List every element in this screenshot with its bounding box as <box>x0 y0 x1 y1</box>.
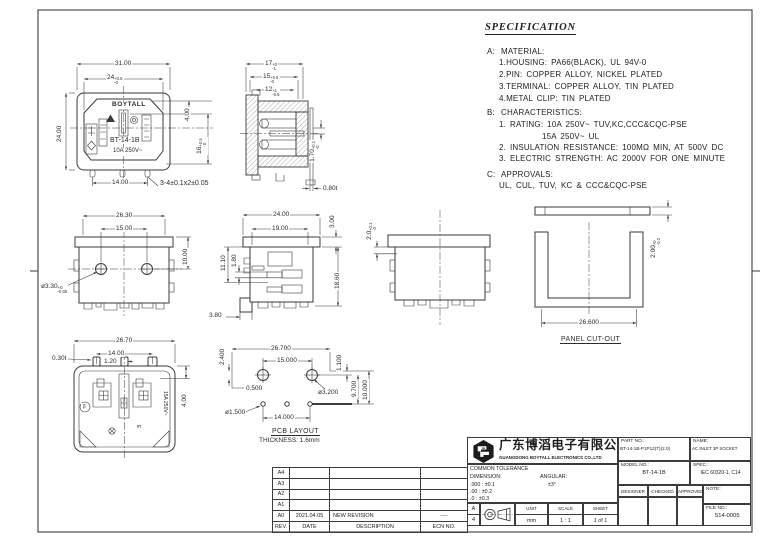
tolerance-dimension-label: DIMENSION: <box>470 474 502 480</box>
projection-symbol-cell <box>480 503 515 526</box>
dim-pcb-10: 10.000 <box>362 379 369 401</box>
dim-side-width: 24.00 <box>272 211 290 218</box>
sheet-cell: SHEET 1 of 1 <box>583 503 618 526</box>
dim-front-pin-note: 3-4±0.1x2±0.05 <box>159 180 210 187</box>
dim-back-hole-dia: ø3.30+0-0.05 <box>40 283 68 295</box>
spec-item: 2. INSULATION RESISTANCE: 100MΩ MIN, AT … <box>499 143 723 152</box>
dim-section-080: 0.80t <box>322 185 338 192</box>
dim-front-4: 4.00 <box>184 107 191 122</box>
dim-panel-thickness: 2.00+0-0.2 <box>650 237 662 259</box>
checked-header: CHECKED <box>648 485 677 497</box>
unit-label: UNIT <box>516 504 547 515</box>
view-side2 <box>388 210 490 325</box>
sheet-label: SHEET <box>584 504 617 515</box>
dim-pcb-11: 1.100 <box>336 354 343 372</box>
dim-bottom-pitch: 14.00 <box>107 350 125 357</box>
company-name-cn: 广东博滔电子有限公司 <box>499 438 630 452</box>
name-value: AC INLET 3P SOCKET <box>691 444 750 451</box>
company-name-en: GUANGDONG BOYTALL ELECTRONICS CO.,LTD <box>499 455 602 460</box>
dim-side-height: 18.60 <box>334 272 341 290</box>
spec-section-c: C:APPROVALS: <box>487 170 553 179</box>
tolerance-angular-value: ±3° <box>548 482 556 488</box>
spec-item: 3.TERMINAL: COPPER ALLOY, TIN PLATED <box>499 82 674 91</box>
dim-front-opening: 24+0.5-0 <box>106 74 124 86</box>
view-back <box>68 230 182 316</box>
scale-value: 1 : 1 <box>549 515 582 527</box>
revision-row: A2 <box>273 489 468 500</box>
dims-panel <box>542 200 673 327</box>
revision-table: A4 A3 A2 A1 A02021.04.05NEW REVISION----… <box>272 467 468 533</box>
dim-pcb-24: 2.400 <box>219 348 226 366</box>
tolerance-title: COMMON TOLERANCE <box>470 466 528 472</box>
dim-panel-width: 26.600 <box>578 319 600 326</box>
dims-bottom <box>68 341 190 379</box>
first-angle-projection-icon <box>481 504 514 525</box>
paper-size-4: 4 <box>468 515 479 526</box>
tolerance-row: .000 : ±0.1 <box>470 482 495 488</box>
ul-mark: uL <box>81 403 88 410</box>
spec-item: 2.PIN: COPPER ALLOY, NICKEL PLATED <box>499 70 662 79</box>
tolerance-row: .0 : ±0.3 <box>470 496 489 502</box>
spec-item: 15A 250V~ UL <box>542 132 599 141</box>
approved-signature-cell <box>677 497 703 526</box>
file-no-value: S14-0005 <box>704 511 750 519</box>
view-bottom <box>74 352 175 460</box>
earth-mark: E <box>134 424 141 429</box>
pcb-layout-title: PCB LAYOUT <box>271 428 320 436</box>
dim-side-foot: 3.80 <box>208 312 223 319</box>
dim-front-height: 24.00 <box>56 125 63 143</box>
name-cell: NAME: AC INLET 3P SOCKET <box>690 437 751 461</box>
dim-bottom-pin-thickness: 0.30t <box>51 355 67 362</box>
dim-side-111: 11.10 <box>220 254 227 272</box>
file-no-cell: FILE NO.: S14-0005 <box>703 504 751 526</box>
dim-pcb-width: 26.700 <box>270 345 292 352</box>
pcb-thickness-note: THICKNESS: 1.6mm <box>258 437 321 444</box>
dim-side-19: 19.00 <box>271 225 289 232</box>
dim-pcb-dia15: ø1.500 <box>224 409 246 416</box>
revision-row: A3 <box>273 478 468 489</box>
specification-title: SPECIFICATION <box>485 22 576 35</box>
spec-item: 1. RATING: 10A 250V~ TUV,KC,CCC&CQC-PSE <box>499 120 687 129</box>
paper-size-a: A <box>468 504 479 515</box>
part-no-cell: PART NO.: BT-14-1B-P1P12(T)(2.0) <box>618 437 690 461</box>
model-no-value: BT-14-1B <box>619 468 689 476</box>
spec-item: 4.METAL CLIP: TIN PLATED <box>499 94 611 103</box>
revision-row: A1 <box>273 500 468 511</box>
dim-pcb-pitch: 14.000 <box>273 414 295 421</box>
tolerance-cell: COMMON TOLERANCE DIMENSION: ANGULAR: .00… <box>467 464 618 503</box>
approved-header: APPROVED <box>677 485 703 497</box>
dim-back-width: 26.30 <box>115 212 133 219</box>
spec-section-a: A:MATERIAL: <box>487 47 544 56</box>
dim-side2-gap: 2.0+0.1-0 <box>366 221 378 240</box>
spec-item: 1.HOUSING: PA66(BLACK), UL 94V-0 <box>499 58 646 67</box>
unit-cell: UNIT mm <box>515 503 548 526</box>
dim-front-pitch: 14.00 <box>111 179 129 186</box>
dim-front-width: 31.00 <box>114 60 132 67</box>
view-section <box>240 90 318 185</box>
dim-bottom-pin-width: 1.20 <box>103 358 118 365</box>
spec-section-b: B:CHARACTERISTICS: <box>487 108 582 117</box>
dim-pcb-holes: 15.000 <box>276 357 298 364</box>
dim-back-height: 10.00 <box>182 248 189 266</box>
company-cell: 广东博滔电子有限公司 GUANGDONG BOYTALL ELECTRONICS… <box>467 437 618 464</box>
drawing-sheet: 31.00 24+0.5-0 24.00 4.00 16+0.5-0 14.00… <box>0 0 770 544</box>
scale-cell: SCALE 1 : 1 <box>548 503 583 526</box>
checked-signature-cell <box>648 497 677 526</box>
designer-signature-cell <box>618 497 648 526</box>
dim-pcb-97: 9.700 <box>351 380 358 398</box>
model-no-cell: MODEL NO.: BT-14-1B <box>618 461 690 485</box>
bottom-rating-mark: 15A 250V~ <box>161 390 168 417</box>
dim-side-18: 1.80 <box>231 253 238 268</box>
dim-bottom-4: 4.00 <box>181 393 188 408</box>
front-face-model: BT-14-1B <box>109 137 141 144</box>
front-face-brand: BOYTALL <box>111 101 147 108</box>
tolerance-angular-label: ANGULAR: <box>540 474 567 480</box>
dims-side2 <box>374 240 397 261</box>
dim-section-17: 17+0-1 <box>264 60 278 72</box>
designer-header: DESIGNER <box>618 485 648 497</box>
title-block: 广东博滔电子有限公司 GUANGDONG BOYTALL ELECTRONICS… <box>467 437 751 526</box>
revision-header-row: REV.DATEDESCRIPTIONECN NO. <box>273 521 468 532</box>
dim-section-12: 12+1-0.5 <box>264 86 280 98</box>
dim-side-flange: 3.00 <box>329 214 336 229</box>
dim-back-holes: 15.00 <box>115 225 133 232</box>
unit-value: mm <box>516 515 547 527</box>
dims-front <box>66 64 212 186</box>
dim-pcb-dia32: ø3.200 <box>317 389 339 396</box>
note-cell: NOTE: <box>703 485 751 504</box>
paper-size-cell: A 4 <box>467 503 480 526</box>
spec-item: UL, CUL, TUV, KC & CCC&CQC-PSE <box>499 181 647 190</box>
dim-bottom-width: 26.70 <box>115 337 133 344</box>
spec-item: 3. ELECTRIC STRENGTH: AC 2000V FOR ONE M… <box>499 154 725 163</box>
panel-cutout-title: PANEL CUT-OUT <box>560 336 621 344</box>
revision-row: A4 <box>273 468 468 479</box>
view-panel-cutout <box>535 207 650 315</box>
dim-front-16: 16+0.5-0 <box>196 137 208 155</box>
spec-value: IEC 60320-1, C14 <box>691 468 750 476</box>
spec-cell: SPEC.: IEC 60320-1, C14 <box>690 461 751 485</box>
view-side <box>240 237 320 312</box>
sheet-value: 1 of 1 <box>584 515 617 527</box>
dim-section-170: 1.70+0.1-0 <box>309 140 321 163</box>
note-label: NOTE: <box>704 486 750 492</box>
tolerance-row: .00 : ±0.2 <box>470 489 492 495</box>
revision-row: A02021.04.05NEW REVISION---- <box>273 511 468 522</box>
part-no-value: BT-14-1B-P1P12(T)(2.0) <box>619 444 689 451</box>
scale-label: SCALE <box>549 504 582 515</box>
front-face-rating: 10A 250V~ <box>112 148 144 155</box>
dim-pcb-05: 0.500 <box>245 385 263 392</box>
dim-section-15: 15+0.5-0 <box>262 73 280 85</box>
